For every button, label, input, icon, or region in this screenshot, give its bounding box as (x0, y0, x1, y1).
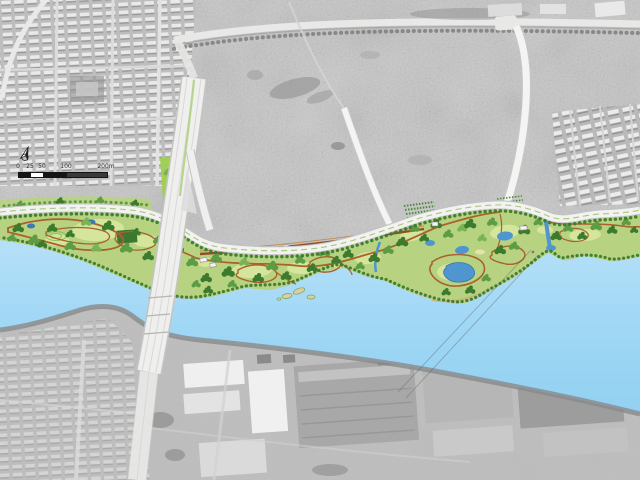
map-canvas (0, 0, 640, 480)
scale-label-200: 200m (97, 163, 114, 170)
north-arrow-icon (17, 144, 35, 164)
housing-rows-northeast (552, 104, 640, 206)
master-plan-map: 0 25 50 100 200m (0, 0, 640, 480)
scale-label-50: 50 (38, 163, 46, 170)
scale-label-25: 25 (26, 163, 34, 170)
scale-bar-segments (18, 172, 108, 178)
scale-bar: 0 25 50 100 200m (16, 162, 116, 184)
urban-southwest (0, 318, 150, 480)
scale-label-0: 0 (16, 163, 20, 170)
scale-label-100: 100 (60, 163, 71, 170)
